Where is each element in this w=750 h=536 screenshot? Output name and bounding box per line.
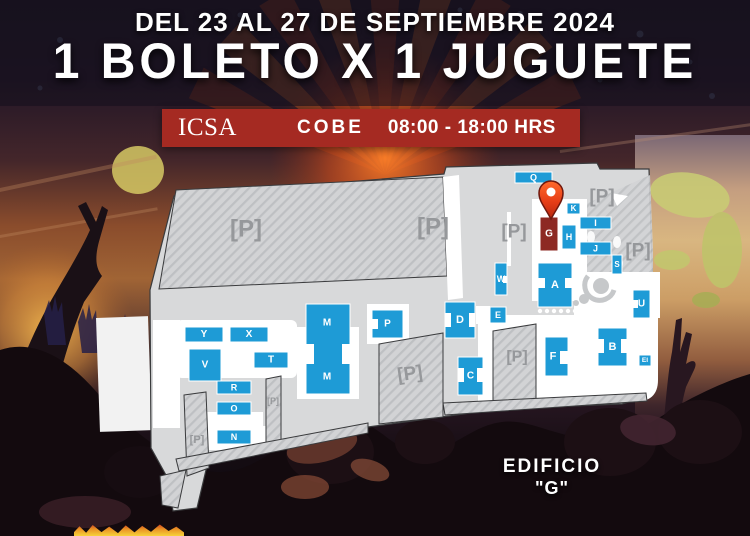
building-label: V <box>202 360 209 371</box>
building-k: K <box>567 203 580 214</box>
building-h: H <box>562 225 576 249</box>
parking-symbol: [P] <box>417 214 449 241</box>
building-r: R <box>217 381 251 394</box>
building-label: C <box>467 371 474 382</box>
building-ei: EI <box>639 355 651 366</box>
building-label: B <box>609 341 617 353</box>
parking-symbol: [P] <box>396 362 424 386</box>
building-label: R <box>231 383 238 393</box>
building-label: K <box>571 204 577 213</box>
callout-line2: "G" <box>487 478 617 499</box>
building-t: T <box>254 352 288 368</box>
parking-symbol: [P] <box>589 187 614 208</box>
org-name: ICSA <box>178 114 237 142</box>
opening-hours: 08:00 - 18:00 HRS <box>388 117 556 139</box>
building-label: D <box>456 314 464 326</box>
dept-name: COBE <box>297 117 364 139</box>
building-label: U <box>638 299 645 310</box>
building-m: MM <box>306 304 350 394</box>
building-label: M <box>323 372 331 383</box>
building-label: W <box>497 274 506 284</box>
building-label: S <box>614 260 620 269</box>
parking-symbol: [P] <box>501 222 526 243</box>
building-g: G <box>540 217 558 251</box>
paint-blob <box>112 146 164 194</box>
building-label: Q <box>530 173 537 183</box>
building-label: X <box>246 329 253 340</box>
parking-symbol: [P] <box>190 434 205 446</box>
building-label: EI <box>642 357 648 364</box>
flyer: QKGHIJSWAUEDPMMFBCEIYXTVRON [P][P][P][P]… <box>0 0 750 536</box>
parking-symbol: [P] <box>625 241 650 262</box>
building-label: Y <box>201 329 208 340</box>
parking-lot-north <box>159 177 447 289</box>
building-u: U <box>633 290 650 318</box>
building-label: O <box>230 404 237 414</box>
parking-symbol: [P] <box>267 396 279 406</box>
building-o: O <box>217 402 251 415</box>
promo-headline: 1 BOLETO X 1 JUGUETE <box>0 33 750 91</box>
building-p: P <box>372 310 403 338</box>
building-d: D <box>445 302 475 338</box>
pin-hole <box>547 188 556 197</box>
building-label: N <box>231 432 238 442</box>
building-callout: EDIFICIO "G" <box>487 456 617 499</box>
building-label: M <box>323 318 331 329</box>
parking-symbol: [P] <box>230 216 262 243</box>
building-label: T <box>268 355 274 366</box>
building-j: J <box>580 242 611 255</box>
building-w: W <box>495 263 507 295</box>
building-v: V <box>189 349 221 381</box>
building-label: J <box>593 244 598 254</box>
building-y: Y <box>185 327 223 342</box>
info-banner: ICSA COBE 08:00 - 18:00 HRS <box>162 109 580 147</box>
building-i: I <box>580 217 611 229</box>
building-label: I <box>594 218 597 228</box>
left-road <box>96 316 152 432</box>
building-f: F <box>545 337 568 376</box>
building-label: P <box>384 319 391 330</box>
building-e: E <box>490 307 506 323</box>
building-b: B <box>598 328 627 366</box>
building-label: A <box>551 279 559 291</box>
building-label: G <box>545 229 553 240</box>
building-x: X <box>230 327 268 342</box>
building-n: N <box>217 430 251 444</box>
building-label: E <box>495 310 501 320</box>
parking-symbol: [P] <box>506 349 527 366</box>
building-s: S <box>612 255 622 274</box>
building-label: F <box>550 351 557 363</box>
building-label: H <box>566 232 573 242</box>
building-a: A <box>538 263 572 307</box>
callout-line1: EDIFICIO <box>487 456 617 478</box>
building-c: C <box>458 357 483 395</box>
